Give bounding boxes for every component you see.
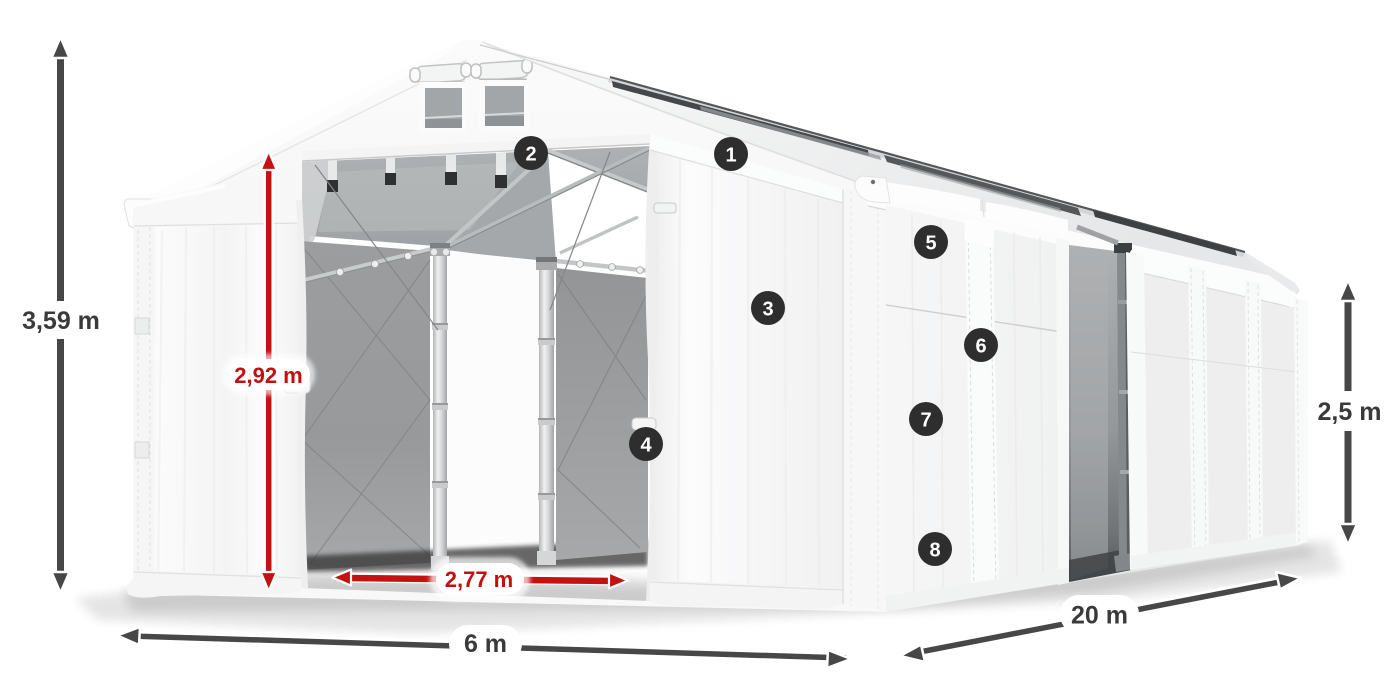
svg-text:7: 7 bbox=[920, 410, 931, 432]
svg-text:3: 3 bbox=[762, 299, 773, 321]
svg-text:2,5 m: 2,5 m bbox=[1318, 398, 1382, 426]
svg-text:6: 6 bbox=[975, 336, 986, 358]
svg-text:1: 1 bbox=[725, 145, 736, 167]
svg-text:2: 2 bbox=[525, 144, 536, 166]
svg-text:4: 4 bbox=[640, 435, 652, 457]
svg-text:3,59 m: 3,59 m bbox=[22, 307, 100, 335]
svg-text:20 m: 20 m bbox=[1071, 602, 1128, 630]
svg-text:5: 5 bbox=[925, 233, 936, 255]
svg-text:2,77 m: 2,77 m bbox=[445, 567, 514, 592]
svg-text:8: 8 bbox=[929, 540, 940, 562]
svg-text:2,92 m: 2,92 m bbox=[234, 363, 303, 388]
svg-text:6 m: 6 m bbox=[464, 630, 507, 658]
